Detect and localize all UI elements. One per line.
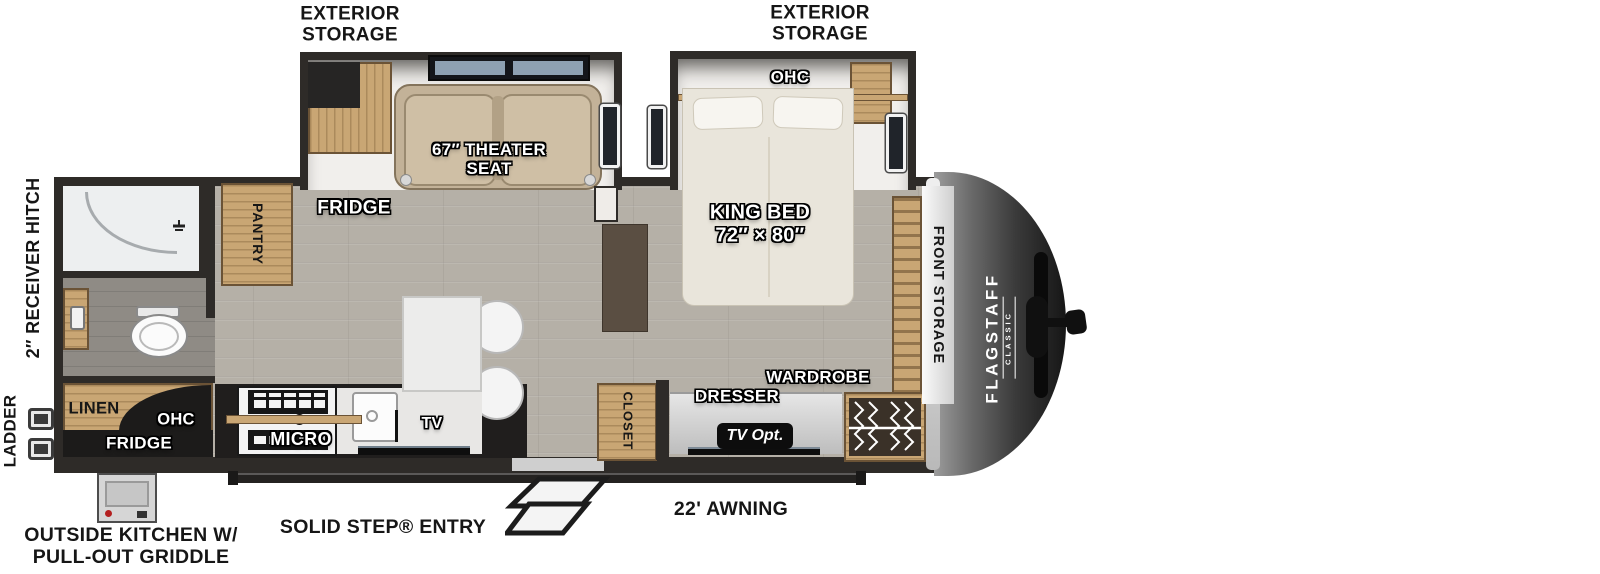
living-tv [358,448,470,455]
tongue-jack [1026,296,1048,358]
pullout-griddle [97,473,157,523]
outside-kitchen-label: OUTSIDE KITCHEN W/ PULL-OUT GRIDDLE [24,524,237,568]
kitchen-ohc-rail [226,415,362,424]
awning-length-label: 22' AWNING [674,498,788,520]
brand-series: CLASSIC [1003,297,1015,379]
bedroom-front-window [886,114,906,172]
hangers-icon-right [885,398,921,456]
living-side-window [600,104,620,168]
ladder-bracket-top [28,408,54,430]
theater-seat-label: 67″ THEATER SEAT [432,140,546,178]
awning-end-cap-right [856,471,866,485]
griddle-foot [137,511,147,518]
theater-seat-foot-right [584,174,596,186]
griddle-plate [105,481,149,507]
toilet-seat [139,322,179,351]
bedroom-side-window-left [648,106,666,168]
wardrobe-cabinet [844,392,926,462]
closet-label: CLOSET [620,392,635,451]
faucet [395,410,398,442]
pillow-left [692,96,763,130]
hangers-icon-left [849,398,885,456]
exterior-storage-right-label: EXTERIOR STORAGE [770,3,870,46]
ladder-label: LADDER [0,395,19,468]
solid-step-entry-label: SOLID STEP® ENTRY [280,516,486,538]
slide-window [428,55,590,81]
shower-door-arc [85,192,177,254]
stove-grate-top [248,390,328,414]
kitchen-peninsula [402,296,482,392]
linen-label: LINEN [69,400,120,419]
fridge-top [308,62,360,108]
brand-logo: FLAGSTAFF CLASSIC [983,272,1016,403]
fridge-cabinet [308,62,392,154]
tv-label: TV [421,415,442,433]
sink-drain [366,410,378,422]
receiver-hitch-label: 2″ RECEIVER HITCH [23,178,43,359]
king-bed [682,88,854,306]
pillow-right [772,96,843,130]
dresser-tv [688,449,820,455]
micro-label: MICRO [270,429,332,449]
ladder-bracket-bottom [28,438,54,460]
vanity-sink [70,306,85,330]
exterior-storage-left-label: EXTERIOR STORAGE [300,4,400,47]
bedroom-ohc-label: OHC [771,67,810,86]
slide-window-pane-right [513,61,583,75]
pantry-label: PANTRY [249,203,265,265]
theater-seat-foot-left [400,174,412,186]
toilet [130,306,190,360]
brand-name: FLAGSTAFF [983,272,1002,403]
wardrobe-label: WARDROBE [766,367,869,386]
bedroom-door [602,224,648,332]
front-storage-label: FRONT STORAGE [930,226,946,364]
floorplan-canvas: EXTERIOR STORAGE EXTERIOR STORAGE 2″ REC… [0,0,1600,574]
griddle-knob [105,510,112,517]
bath-vanity [63,288,89,350]
tv-option-badge: TV Opt. [717,423,793,449]
awning-end-cap-left [228,471,238,485]
bathroom-wall [206,186,215,318]
closet-wall-stub [656,380,669,460]
bedroom-wall-stub [594,186,618,222]
outside-fridge-label: FRIDGE [106,433,172,452]
dresser-label: DRESSER [695,386,779,405]
slide-window-pane-left [435,61,505,75]
entry-door-threshold [512,458,604,471]
front-storage-cabinet [892,196,922,394]
fridge-label: FRIDGE [317,197,391,218]
bath-partition-wall [63,376,215,383]
shower [63,186,206,278]
showerhead-icon [171,220,187,234]
hitch-coupler [1064,309,1087,336]
entry-steps [505,476,617,538]
bath-ohc-label: OHC [157,411,195,430]
king-bed-label: KING BED 72″ × 80″ [710,201,810,246]
